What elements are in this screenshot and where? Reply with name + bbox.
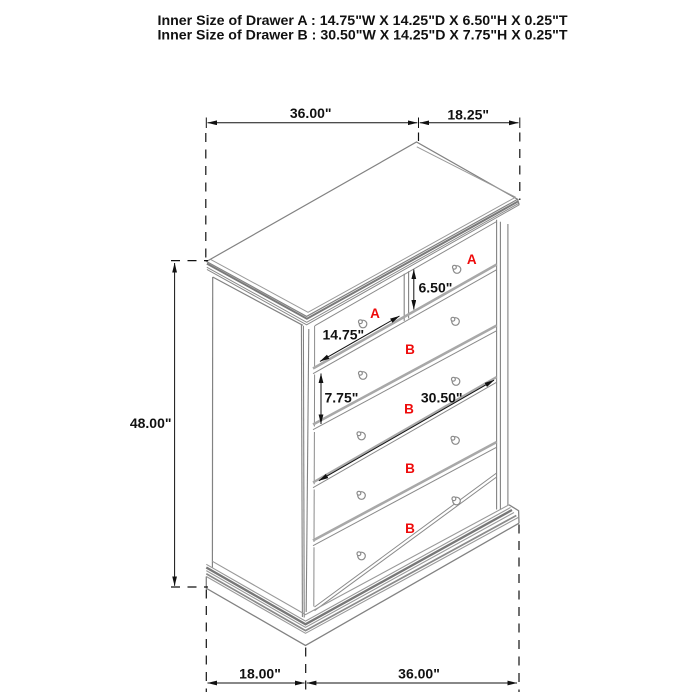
svg-text:B: B [405, 461, 415, 476]
svg-text:30.50": 30.50" [421, 390, 463, 406]
svg-text:18.00": 18.00" [239, 666, 281, 682]
svg-text:A: A [370, 306, 380, 321]
svg-text:B: B [404, 402, 414, 417]
svg-text:B: B [405, 521, 415, 536]
svg-text:36.00": 36.00" [398, 666, 440, 682]
svg-text:6.50": 6.50" [419, 280, 453, 296]
svg-text:18.25": 18.25" [447, 107, 489, 123]
svg-text:36.00": 36.00" [290, 105, 332, 121]
svg-text:B: B [405, 342, 415, 357]
svg-text:48.00": 48.00" [130, 415, 172, 431]
svg-text:7.75": 7.75" [325, 390, 359, 406]
svg-text:Inner Size of Drawer A : 14.75: Inner Size of Drawer A : 14.75"W X 14.25… [158, 12, 568, 28]
svg-text:A: A [467, 252, 477, 267]
svg-text:14.75": 14.75" [323, 327, 365, 343]
svg-text:Inner Size of Drawer B : 30.50: Inner Size of Drawer B : 30.50"W X 14.25… [158, 27, 568, 43]
